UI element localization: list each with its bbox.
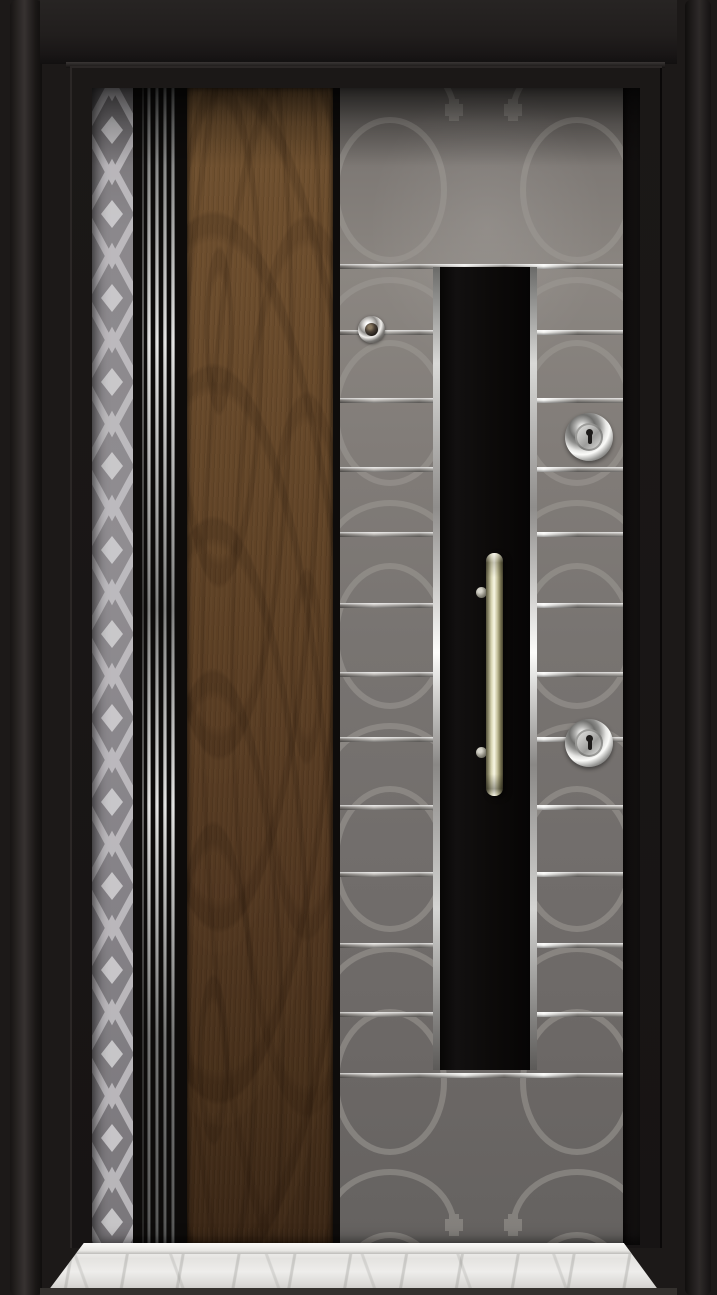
center-panel-black	[440, 267, 530, 1070]
lock-core	[575, 729, 603, 757]
inox-stripe-group	[133, 88, 187, 1245]
chrome-stripe	[147, 88, 151, 1245]
chrome-stripe	[142, 88, 144, 1245]
floor-shadow	[40, 1288, 677, 1295]
frame-header	[40, 0, 677, 64]
center-panel-chrome-left	[433, 267, 440, 1070]
chrome-stripe	[155, 88, 159, 1245]
wood-veneer-panel	[187, 88, 333, 1245]
marble-top-face	[45, 1243, 662, 1254]
door-photo	[0, 0, 717, 1295]
frame-right-column	[685, 0, 711, 1295]
handle-mount	[476, 747, 487, 758]
door-right-edge	[623, 88, 640, 1245]
lock-cylinder-lower	[565, 719, 613, 767]
chrome-strip	[340, 1073, 623, 1078]
center-panel-chrome-right	[530, 267, 537, 1070]
door-handle	[486, 553, 503, 796]
chrome-stripe	[163, 88, 167, 1245]
keyhole-icon	[588, 736, 592, 750]
lock-cylinder-upper	[565, 413, 613, 461]
door-leaf	[92, 88, 640, 1245]
peephole	[358, 316, 385, 343]
chrome-stripe	[171, 88, 175, 1245]
frame-left-column	[10, 0, 42, 1295]
handle-mount	[476, 587, 487, 598]
lock-core	[575, 423, 603, 451]
peephole-lens	[365, 323, 378, 336]
keyhole-icon	[588, 430, 592, 444]
quatrefoil-panel	[340, 88, 623, 1245]
center-black-panel	[433, 267, 537, 1070]
diamond-pattern	[92, 88, 133, 1245]
diamond-pattern-panel	[92, 88, 133, 1245]
